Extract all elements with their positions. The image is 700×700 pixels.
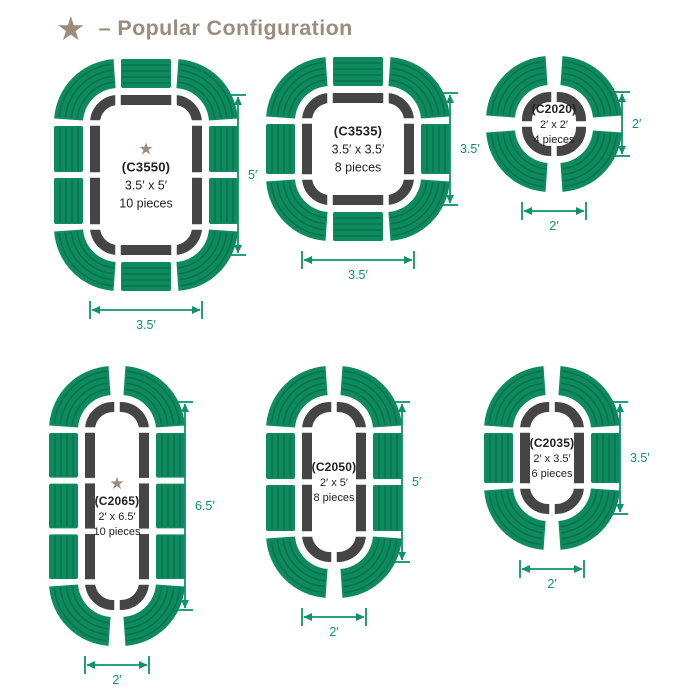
size-label: 2′ x 5′ xyxy=(312,477,357,489)
config-diagram-c2065: ★ (C2065) 2′ x 6.5′ 10 pieces 6.5′ 2′ xyxy=(47,364,219,690)
config-center-label: ★ (C2035) 2′ x 3.5′ 6 pieces xyxy=(530,436,575,480)
config-center-label: ★ (C3550) 3.5′ x 5′ 10 pieces xyxy=(119,140,173,211)
width-dimension-label: 3.5′ xyxy=(348,268,368,282)
straight-piece xyxy=(266,433,295,479)
straight-piece xyxy=(54,178,83,224)
page-header: ★ – Popular Configuration xyxy=(56,12,353,45)
corner-piece xyxy=(388,179,449,240)
size-label: 3.5′ x 5′ xyxy=(119,178,173,192)
model-code: (C2020) xyxy=(532,102,577,116)
corner-piece xyxy=(484,366,545,427)
page-title: – Popular Configuration xyxy=(99,16,353,41)
size-label: 2′ x 6.5′ xyxy=(93,511,140,523)
height-dimension-label: 3.5′ xyxy=(460,142,480,156)
width-dimension xyxy=(85,656,149,674)
pieces-count-label: 8 pieces xyxy=(312,492,357,504)
model-code: (C3535) xyxy=(332,124,385,139)
straight-piece xyxy=(49,484,78,529)
corner-piece xyxy=(123,366,184,427)
config-diagram-c2020: ★ (C2020) 2′ x 2′ 4 pieces 2′ 2′ xyxy=(484,54,656,236)
straight-piece xyxy=(333,212,383,241)
corner-piece xyxy=(54,229,115,290)
corner-piece xyxy=(484,488,545,549)
straight-piece xyxy=(156,534,185,579)
straight-piece xyxy=(209,178,238,224)
straight-piece xyxy=(266,485,295,531)
straight-piece xyxy=(49,534,78,579)
config-center-label: ★ (C2065) 2′ x 6.5′ 10 pieces xyxy=(93,474,140,538)
corner-piece xyxy=(558,488,619,549)
model-code: (C2035) xyxy=(530,436,575,450)
straight-piece xyxy=(156,433,185,478)
corner-piece xyxy=(123,584,184,645)
popular-star-icon: ★ xyxy=(93,474,140,494)
model-code: (C3550) xyxy=(119,159,173,174)
config-center-label: ★ (C2020) 2′ x 2′ 4 pieces xyxy=(532,102,577,146)
straight-piece xyxy=(373,485,402,531)
width-dimension-label: 3.5′ xyxy=(136,318,156,332)
corner-piece xyxy=(340,536,401,597)
width-dimension-label: 2′ xyxy=(112,673,121,687)
corner-piece xyxy=(388,57,449,118)
corner-piece xyxy=(49,584,110,645)
corner-piece xyxy=(49,366,110,427)
width-dimension-label: 2′ xyxy=(549,219,558,233)
config-diagram-c2050: ★ (C2050) 2′ x 5′ 8 pieces 5′ 2′ xyxy=(264,364,436,642)
width-dimension xyxy=(522,202,586,220)
corner-piece xyxy=(176,229,237,290)
straight-piece xyxy=(591,433,620,483)
straight-piece xyxy=(54,126,83,172)
config-center-label: ★ (C3535) 3.5′ x 3.5′ 8 pieces xyxy=(332,124,385,175)
corner-piece xyxy=(266,366,327,427)
config-diagram-c3535: ★ (C3535) 3.5′ x 3.5′ 8 pieces 3.5′ 3.5′ xyxy=(264,55,484,285)
height-dimension-label: 6.5′ xyxy=(195,499,215,513)
corner-piece xyxy=(54,59,115,120)
corner-piece xyxy=(176,59,237,120)
pieces-count-label: 6 pieces xyxy=(530,468,575,480)
size-label: 2′ x 2′ xyxy=(532,119,577,131)
corner-piece xyxy=(558,366,619,427)
straight-piece xyxy=(121,262,171,291)
pieces-count-label: 8 pieces xyxy=(332,161,385,175)
size-label: 2′ x 3.5′ xyxy=(530,453,575,465)
width-dimension-label: 2′ xyxy=(547,577,556,591)
corner-piece xyxy=(266,57,327,118)
config-diagram-c2035: ★ (C2035) 2′ x 3.5′ 6 pieces 3.5′ 2′ xyxy=(482,364,654,594)
height-dimension-label: 5′ xyxy=(248,168,257,182)
straight-piece xyxy=(421,124,450,174)
height-dimension xyxy=(394,402,410,562)
straight-piece xyxy=(333,57,383,86)
width-dimension xyxy=(520,560,584,578)
straight-piece xyxy=(266,124,295,174)
straight-piece xyxy=(121,59,171,88)
height-dimension-label: 2′ xyxy=(632,117,641,131)
straight-piece xyxy=(484,433,513,483)
corner-piece xyxy=(266,536,327,597)
pieces-count-label: 10 pieces xyxy=(93,526,140,538)
straight-piece xyxy=(156,484,185,529)
model-code: (C2065) xyxy=(93,494,140,508)
corner-piece xyxy=(266,179,327,240)
width-dimension xyxy=(302,251,414,269)
height-dimension-label: 5′ xyxy=(412,475,421,489)
straight-piece xyxy=(209,126,238,172)
pieces-count-label: 4 pieces xyxy=(532,134,577,146)
width-dimension xyxy=(90,301,202,319)
width-dimension-label: 2′ xyxy=(329,625,338,639)
corner-piece xyxy=(340,366,401,427)
pieces-count-label: 10 pieces xyxy=(119,196,173,210)
popular-star-legend-icon: ★ xyxy=(56,12,86,45)
straight-piece xyxy=(373,433,402,479)
height-dimension-label: 3.5′ xyxy=(630,451,650,465)
size-label: 3.5′ x 3.5′ xyxy=(332,143,385,157)
height-dimension xyxy=(230,95,246,255)
config-diagram-c3550: ★ (C3550) 3.5′ x 5′ 10 pieces 5′ 3.5′ xyxy=(52,57,272,335)
straight-piece xyxy=(49,433,78,478)
width-dimension xyxy=(302,608,366,626)
popular-star-icon: ★ xyxy=(119,140,173,160)
config-center-label: ★ (C2050) 2′ x 5′ 8 pieces xyxy=(312,460,357,504)
model-code: (C2050) xyxy=(312,460,357,474)
